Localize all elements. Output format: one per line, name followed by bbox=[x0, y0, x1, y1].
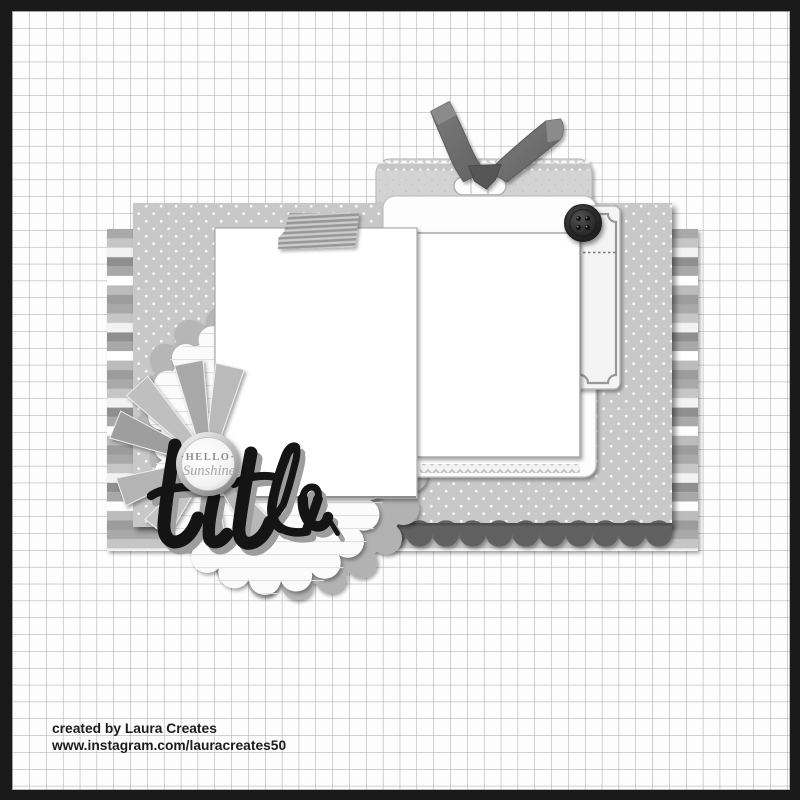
svg-text:·HELLO·: ·HELLO· bbox=[181, 452, 236, 463]
svg-text:created by Laura Creates: created by Laura Creates bbox=[52, 721, 217, 736]
svg-text:Sunshine: Sunshine bbox=[183, 463, 236, 479]
svg-text:www.instagram.com/lauracreates: www.instagram.com/lauracreates50 bbox=[51, 738, 286, 753]
